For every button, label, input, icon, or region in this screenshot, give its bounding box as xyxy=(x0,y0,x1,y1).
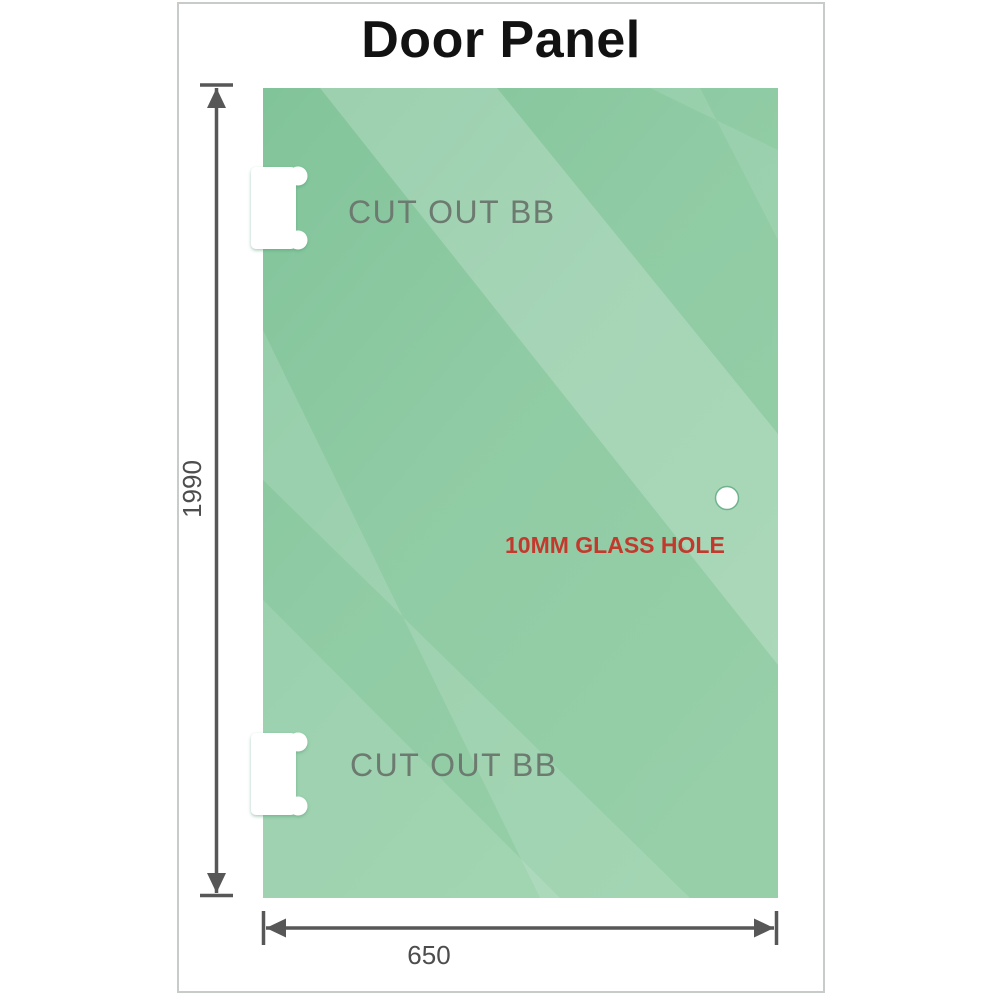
width-dimension xyxy=(264,911,777,945)
width-dimension-label: 650 xyxy=(379,940,479,970)
arrow-down-icon xyxy=(207,873,226,893)
arrow-left-icon xyxy=(266,919,286,938)
door-panel-diagram: Door Panel CUT OUT BB CUT OUT BB 10MM GL… xyxy=(0,0,1000,1000)
diagram-title: Door Panel xyxy=(177,14,825,66)
height-dimension-label: 1990 xyxy=(177,429,207,549)
glass-hole xyxy=(716,487,739,510)
drawing-area xyxy=(0,0,1000,1000)
cutout-bottom-label: CUT OUT BB xyxy=(350,749,558,781)
glass-hole-label: 10MM GLASS HOLE xyxy=(505,533,715,558)
arrow-up-icon xyxy=(207,88,226,108)
cutout-top-label: CUT OUT BB xyxy=(348,196,556,228)
arrow-right-icon xyxy=(754,919,774,938)
